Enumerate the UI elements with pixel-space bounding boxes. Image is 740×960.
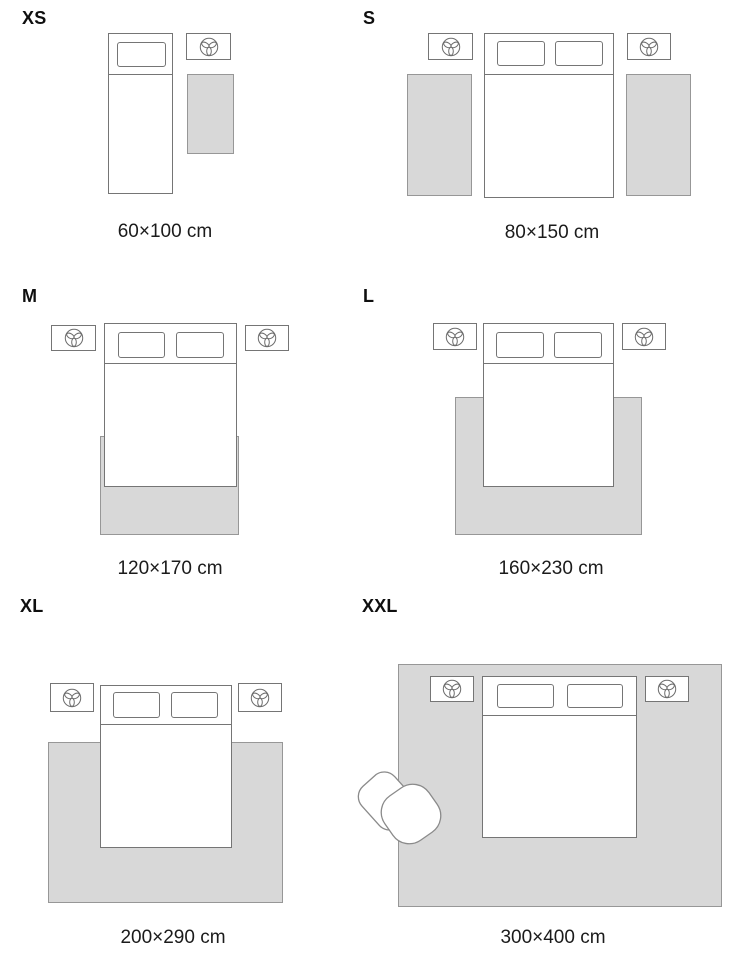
plant-icon [256,327,278,349]
size-panel-m: M [0,280,360,590]
rug-dimensions-caption: 200×290 cm [73,927,273,949]
nightstand [428,33,473,60]
rug-dimensions-caption: 120×170 cm [70,558,270,580]
nightstand [186,33,231,60]
size-panel-xs: XS 60×100 cm [0,0,360,270]
size-panel-xxl: XXL [360,590,740,960]
pillow [118,332,165,358]
bed [100,685,232,848]
plant-icon [638,36,660,58]
rug-dimensions-caption: 80×150 cm [452,222,652,244]
pillow [171,692,218,718]
nightstand [627,33,671,60]
armchair-icon [360,762,450,852]
bed [482,676,637,838]
plant-icon [249,687,271,709]
plant-icon [633,326,655,348]
bed [484,33,614,198]
bed-edge-line [484,363,613,364]
bed-edge-line [483,715,636,716]
size-label: XS [22,8,46,29]
plant-icon [440,36,462,58]
bed-edge-line [101,724,231,725]
pillow [497,41,545,66]
pillow [496,332,544,358]
size-label: S [363,8,375,29]
size-panel-s: S [360,0,740,270]
nightstand [238,683,282,712]
nightstand [51,325,96,351]
bed [104,323,237,487]
bed-edge-line [109,74,172,75]
size-panel-l: L [360,280,740,590]
rug-right [626,74,691,196]
size-label: L [363,286,374,307]
size-panel-xl: XL [0,590,360,960]
nightstand [50,683,94,712]
nightstand [245,325,289,351]
pillow [176,332,224,358]
plant-icon [656,678,678,700]
nightstand [645,676,689,702]
plant-icon [444,326,466,348]
pillow [555,41,603,66]
bed-edge-line [485,74,613,75]
bed [108,33,173,194]
pillow [113,692,160,718]
nightstand [622,323,666,350]
rug-size-guide: XS 60×100 cm S [0,0,740,960]
bed [483,323,614,487]
nightstand [430,676,474,702]
size-label: M [22,286,37,307]
plant-icon [61,687,83,709]
pillow [554,332,602,358]
bed-edge-line [105,363,236,364]
rug-dimensions-caption: 60×100 cm [65,221,265,243]
rug [187,74,234,154]
rug-dimensions-caption: 300×400 cm [453,927,653,949]
nightstand [433,323,477,350]
size-label: XL [20,596,43,617]
plant-icon [198,36,220,58]
plant-icon [441,678,463,700]
size-label: XXL [362,596,398,617]
pillow [497,684,554,708]
plant-icon [63,327,85,349]
rug-left [407,74,472,196]
pillow [117,42,166,67]
rug-dimensions-caption: 160×230 cm [451,558,651,580]
pillow [567,684,623,708]
